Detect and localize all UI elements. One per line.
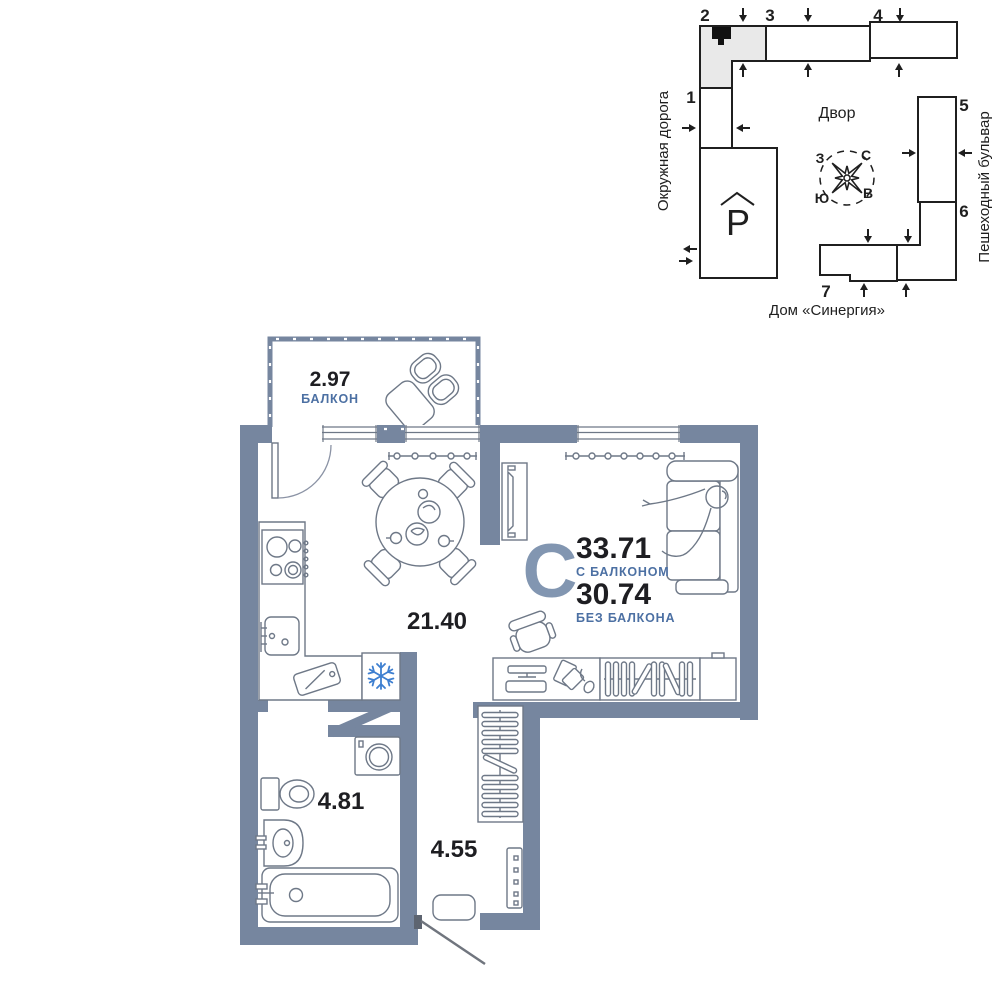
window bbox=[405, 425, 480, 443]
building-5 bbox=[918, 97, 956, 202]
radiator bbox=[388, 452, 477, 460]
building-1 bbox=[700, 88, 732, 148]
desk bbox=[493, 658, 600, 700]
hall-wardrobe bbox=[478, 706, 523, 822]
building-2-label: 2 bbox=[700, 6, 709, 25]
arrow-down-icon bbox=[804, 8, 812, 22]
arrow-down-icon bbox=[739, 8, 747, 22]
bathtub bbox=[256, 868, 398, 922]
building-1-label: 1 bbox=[686, 88, 695, 107]
area-with-balcony-value: 33.71 bbox=[576, 532, 651, 565]
shoe-rack bbox=[507, 848, 522, 908]
bathroom-area-value: 4.81 bbox=[318, 788, 365, 815]
plan-canvas: P 2 3 4 1 5 6 7 bbox=[0, 0, 1000, 1000]
toilet bbox=[261, 778, 314, 810]
bathroom: 4.81 bbox=[256, 737, 400, 922]
door-mat bbox=[433, 895, 475, 920]
building-7 bbox=[820, 245, 897, 281]
compass-west-label: З bbox=[816, 150, 825, 166]
balcony-door bbox=[272, 443, 331, 498]
building-2-highlighted bbox=[700, 26, 766, 88]
living-room: С 33.71 С БАЛКОНОМ 30.74 БЕЗ БАЛКОНА bbox=[493, 461, 738, 700]
sofa bbox=[667, 461, 738, 594]
entry-door bbox=[414, 915, 485, 964]
hallway-area-value: 4.55 bbox=[431, 836, 478, 863]
building-6-label: 6 bbox=[959, 202, 968, 221]
arrow-right-icon bbox=[682, 124, 696, 132]
building-6 bbox=[897, 202, 956, 280]
fridge bbox=[362, 653, 400, 700]
arrow-right-icon bbox=[679, 257, 693, 265]
site-plan: P 2 3 4 1 5 6 7 bbox=[655, 6, 993, 319]
arrow-down-icon bbox=[904, 229, 912, 243]
arrow-left-icon bbox=[958, 149, 972, 157]
arrow-up-icon bbox=[739, 63, 747, 77]
arrow-left-icon bbox=[736, 124, 750, 132]
compass-north-label: С bbox=[861, 147, 871, 163]
radiator bbox=[565, 452, 685, 460]
building-7-label: 7 bbox=[821, 282, 830, 301]
area-without-balcony-label: БЕЗ БАЛКОНА bbox=[576, 611, 675, 625]
wardrobe bbox=[600, 658, 700, 700]
balcony-room-label: БАЛКОН bbox=[301, 392, 359, 406]
parking-label: P bbox=[726, 202, 750, 243]
kitchen-living-area-value: 21.40 bbox=[407, 608, 467, 635]
area-without-balcony-value: 30.74 bbox=[576, 578, 651, 611]
washbasin bbox=[256, 820, 303, 866]
arrow-down-icon bbox=[896, 8, 904, 22]
dining-table bbox=[361, 460, 478, 588]
floorplan-page: P 2 3 4 1 5 6 7 bbox=[0, 0, 1000, 1000]
arrow-right-icon bbox=[902, 149, 916, 157]
courtyard-label: Двор bbox=[819, 105, 856, 122]
arrow-down-icon bbox=[864, 229, 872, 243]
floor-plan: 2.97 БАЛКОН bbox=[240, 339, 758, 964]
office-chair bbox=[505, 609, 558, 657]
boulevard-label: Пешеходный бульвар bbox=[976, 111, 993, 262]
window bbox=[577, 425, 680, 443]
balcony-lounge-set bbox=[377, 349, 464, 434]
parking-garage: P bbox=[700, 148, 777, 278]
arrow-up-icon bbox=[804, 63, 812, 77]
arrow-up-icon bbox=[902, 283, 910, 297]
building-3-label: 3 bbox=[765, 6, 774, 25]
washing-machine bbox=[355, 737, 400, 775]
arrow-up-icon bbox=[860, 283, 868, 297]
balcony-area-value: 2.97 bbox=[310, 368, 351, 391]
compass-east-label: В bbox=[863, 185, 873, 201]
cabinet bbox=[700, 653, 736, 700]
apartment-type-letter: С bbox=[523, 529, 578, 614]
balcony: 2.97 БАЛКОН bbox=[270, 339, 478, 434]
kitchen-sink bbox=[261, 617, 299, 655]
house-name-label: Дом «Синергия» bbox=[769, 302, 885, 319]
area-with-balcony-label: С БАЛКОНОМ bbox=[576, 565, 669, 579]
compass-rose: З С Ю В bbox=[815, 147, 874, 206]
compass-south-label: Ю bbox=[815, 190, 829, 206]
arrow-left-icon bbox=[683, 245, 697, 253]
building-4-label: 4 bbox=[873, 6, 883, 25]
stove bbox=[262, 530, 308, 584]
building-5-label: 5 bbox=[959, 96, 968, 115]
arrow-up-icon bbox=[895, 63, 903, 77]
window bbox=[322, 425, 377, 443]
road-label: Окружная дорога bbox=[655, 90, 672, 211]
